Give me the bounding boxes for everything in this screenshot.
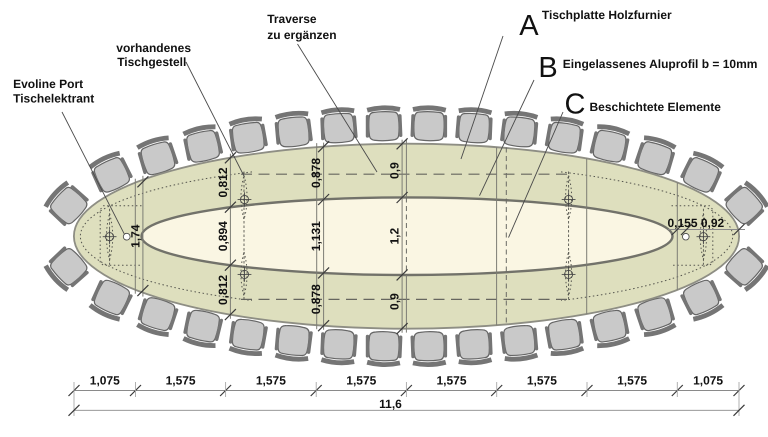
svg-text:0,812: 0,812 (216, 275, 230, 305)
svg-text:11,6: 11,6 (379, 397, 402, 411)
svg-text:Tischelektrant: Tischelektrant (13, 92, 94, 106)
svg-text:Evoline Port: Evoline Port (13, 77, 83, 91)
svg-text:1,575: 1,575 (256, 373, 286, 387)
svg-text:1,575: 1,575 (436, 373, 466, 387)
svg-text:1,131: 1,131 (309, 221, 323, 251)
svg-text:0,812: 0,812 (216, 167, 230, 197)
svg-text:0,878: 0,878 (309, 284, 323, 314)
svg-text:0,9: 0,9 (388, 293, 402, 310)
svg-text:0,155: 0,155 (667, 216, 697, 230)
svg-text:Traverse: Traverse (267, 12, 317, 26)
svg-text:C: C (565, 89, 586, 121)
svg-text:1,575: 1,575 (617, 373, 647, 387)
svg-text:0,878: 0,878 (309, 158, 323, 188)
svg-text:A: A (519, 10, 539, 42)
svg-text:zu ergänzen: zu ergänzen (267, 28, 336, 42)
svg-text:1,075: 1,075 (693, 373, 723, 387)
svg-text:Beschichtete Elemente: Beschichtete Elemente (590, 100, 722, 114)
svg-text:Tischgestell: Tischgestell (117, 55, 186, 69)
svg-text:1,2: 1,2 (388, 228, 402, 245)
svg-text:0,92: 0,92 (701, 216, 725, 230)
svg-text:1,74: 1,74 (128, 224, 142, 248)
svg-text:1,575: 1,575 (346, 373, 376, 387)
svg-text:Eingelassenes Aluprofil b = 10: Eingelassenes Aluprofil b = 10mm (563, 57, 758, 71)
svg-text:B: B (538, 52, 557, 84)
svg-text:Tischplatte Holzfurnier: Tischplatte Holzfurnier (542, 8, 672, 22)
svg-text:1,075: 1,075 (90, 373, 120, 387)
svg-text:vorhandenes: vorhandenes (116, 41, 191, 55)
svg-text:0,9: 0,9 (388, 162, 402, 179)
svg-text:1,575: 1,575 (166, 373, 196, 387)
svg-text:0,894: 0,894 (216, 221, 230, 251)
svg-text:1,575: 1,575 (527, 373, 557, 387)
